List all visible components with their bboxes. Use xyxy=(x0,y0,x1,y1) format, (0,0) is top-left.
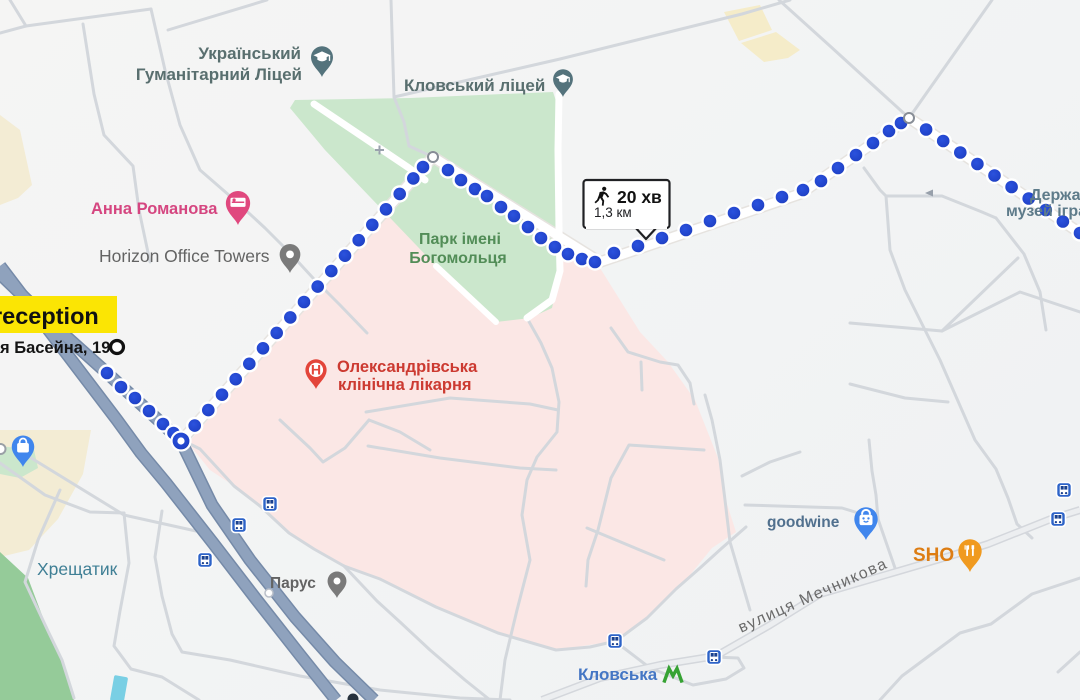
svg-text:reception: reception xyxy=(0,303,99,329)
svg-text:Анна Романова: Анна Романова xyxy=(91,200,218,218)
svg-text:Парус: Парус xyxy=(270,575,316,592)
svg-text:Хрещатик: Хрещатик xyxy=(37,559,118,579)
svg-text:SHO: SHO xyxy=(913,545,954,566)
svg-text:Український: Український xyxy=(198,44,301,63)
svg-text:Богомольця: Богомольця xyxy=(409,250,506,267)
svg-text:Кловська: Кловська xyxy=(578,665,658,684)
svg-text:музей ігра: музей ігра xyxy=(1006,203,1080,220)
svg-text:клінічна лікарня: клінічна лікарня xyxy=(338,376,472,394)
svg-text:Держав: Держав xyxy=(1030,187,1080,204)
svg-text:Олександрівська: Олександрівська xyxy=(337,358,478,376)
svg-text:Парк імені: Парк імені xyxy=(419,231,501,248)
svg-text:Гуманітарний Ліцей: Гуманітарний Ліцей xyxy=(136,65,302,84)
svg-text:я Басейна, 19: я Басейна, 19 xyxy=(0,339,110,357)
svg-text:Кловський ліцей: Кловський ліцей xyxy=(404,76,545,95)
svg-text:Horizon Office Towers: Horizon Office Towers xyxy=(99,246,270,266)
svg-text:20 хв: 20 хв xyxy=(617,187,662,207)
svg-text:goodwine: goodwine xyxy=(767,514,840,531)
svg-text:H: H xyxy=(311,363,321,379)
svg-text:1,3 км: 1,3 км xyxy=(594,205,632,220)
